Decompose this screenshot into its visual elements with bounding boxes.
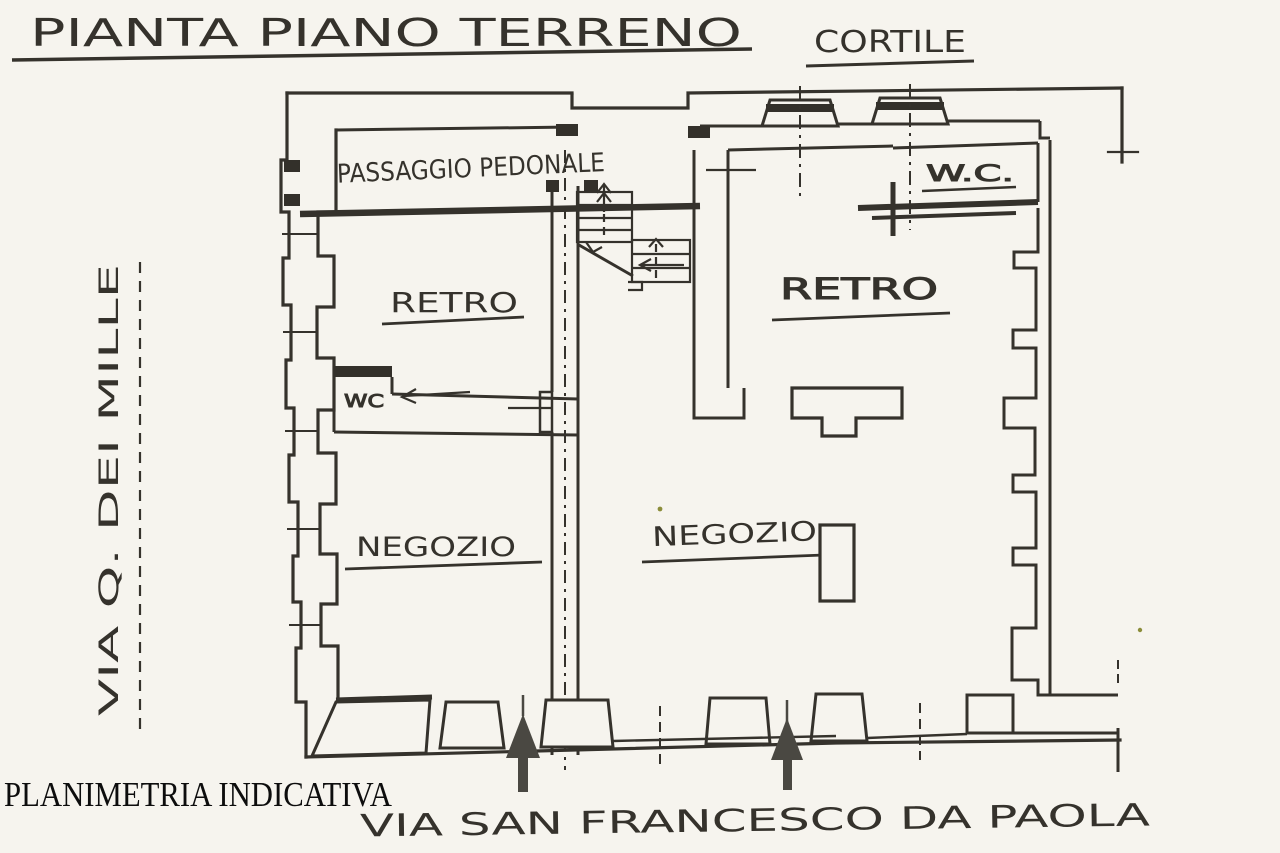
scan-speck — [1138, 628, 1142, 632]
stair-left-arrow-icon — [640, 259, 684, 271]
stairwell — [577, 150, 744, 418]
t-pillar — [792, 388, 902, 436]
east-wall — [967, 140, 1118, 772]
street-label-left: VIA Q. DEI MILLE — [94, 264, 125, 716]
bottom-inner-wall — [336, 697, 432, 700]
courtyard-underline — [806, 61, 974, 66]
wc-right-underline — [922, 187, 1016, 191]
door-jamb-mark — [284, 194, 300, 206]
negozio-center-area: NEGOZIO — [642, 516, 854, 601]
retro-right-label: RETRO — [780, 272, 938, 306]
stair-foot — [628, 282, 642, 290]
retro-left-label: RETRO — [390, 286, 518, 319]
door-jamb-mark — [556, 124, 578, 136]
wall-left-outer — [281, 93, 306, 757]
entrance-arrow-left-icon — [506, 695, 540, 792]
corridor-bottom-wall — [300, 206, 700, 214]
wc-right-top-wall — [893, 143, 1038, 148]
retro-right-underline — [772, 313, 950, 320]
wc-lintel-dark — [334, 366, 392, 377]
watermark-text: PLANIMETRIA INDICATIVA — [4, 775, 393, 814]
scan-speck — [658, 507, 663, 512]
facade-pier — [811, 694, 867, 741]
party-wall — [508, 150, 578, 770]
room-labels-left: RETRO NEGOZIO — [345, 286, 542, 569]
street-bottom-text: VIA SAN FRANCESCO DA PAOLA — [360, 797, 1150, 844]
door-jamb-mark — [584, 180, 598, 192]
right-wing: W.C. RETRO — [706, 143, 1038, 436]
corner-pier — [312, 700, 430, 756]
floor-plan-drawing: PIANTA PIANO TERRENO CORTILE PLANIMETRIA… — [0, 0, 1280, 853]
street-label-bottom: VIA SAN FRANCESCO DA PAOLA — [360, 797, 1150, 844]
wc-right-bottom-wall — [858, 202, 1038, 208]
wc-right-label: W.C. — [926, 162, 1014, 187]
wall-stair-tower-top — [572, 95, 688, 108]
negozio-left-label: NEGOZIO — [356, 532, 516, 563]
courtyard-label: CORTILE — [814, 25, 966, 60]
scanned-floor-plan: PIANTA PIANO TERRENO CORTILE PLANIMETRIA… — [0, 0, 1280, 853]
facade-pier — [541, 700, 613, 747]
negozio-center-label: NEGOZIO — [651, 516, 817, 553]
wall-step — [1040, 121, 1050, 138]
storefront-line — [867, 734, 967, 738]
wc-left-label: WC — [344, 391, 384, 412]
negozio-center-label-group: NEGOZIO — [651, 516, 817, 553]
wall-top-right — [688, 88, 1122, 93]
corridor-top-wall — [336, 127, 572, 130]
east-wall-stepped-edge — [1004, 208, 1050, 695]
page-title: PIANTA PIANO TERRENO — [30, 11, 742, 55]
door-jamb-mark — [284, 160, 300, 172]
door-jamb-mark — [546, 180, 559, 192]
stair-winder-diagonal — [579, 245, 633, 276]
stair-hall-west-wall — [694, 150, 744, 418]
negozio-left-underline — [345, 562, 542, 569]
column-pillar — [820, 525, 854, 601]
facade-pier — [440, 702, 504, 748]
pier-block — [967, 695, 1013, 733]
door-jamb-mark — [688, 126, 710, 138]
bottom-facade — [312, 694, 967, 764]
retro-right-top-wall — [728, 146, 893, 150]
